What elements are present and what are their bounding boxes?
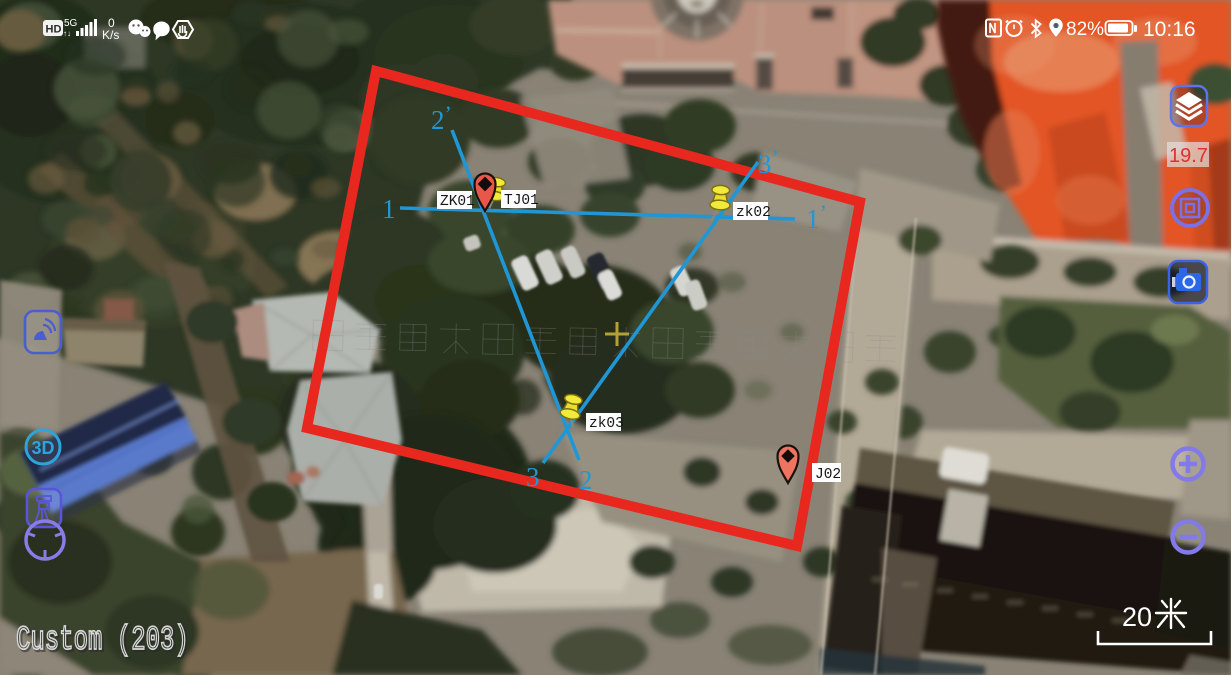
svg-text:3: 3 [526,462,540,492]
svg-text:HD: HD [46,24,62,36]
svg-text:TJ01: TJ01 [504,193,539,209]
svg-text:82%: 82% [1066,19,1104,40]
svg-text:J02: J02 [815,467,841,483]
svg-text:Custom (203): Custom (203) [16,620,189,659]
svg-text:zk02: zk02 [736,205,771,221]
svg-text:3D: 3D [31,438,54,458]
svg-text:1: 1 [382,194,396,224]
svg-text:19.7: 19.7 [1169,145,1208,167]
svg-text:2: 2 [579,465,593,495]
svg-text:20: 20 [1122,602,1152,632]
svg-text:↑↓: ↑↓ [63,29,71,38]
svg-text:K/s: K/s [102,28,119,42]
svg-text:ZK01: ZK01 [440,194,475,210]
svg-text:10:16: 10:16 [1143,18,1196,41]
svg-text:5G: 5G [64,18,78,29]
svg-text:zk03: zk03 [589,416,624,432]
